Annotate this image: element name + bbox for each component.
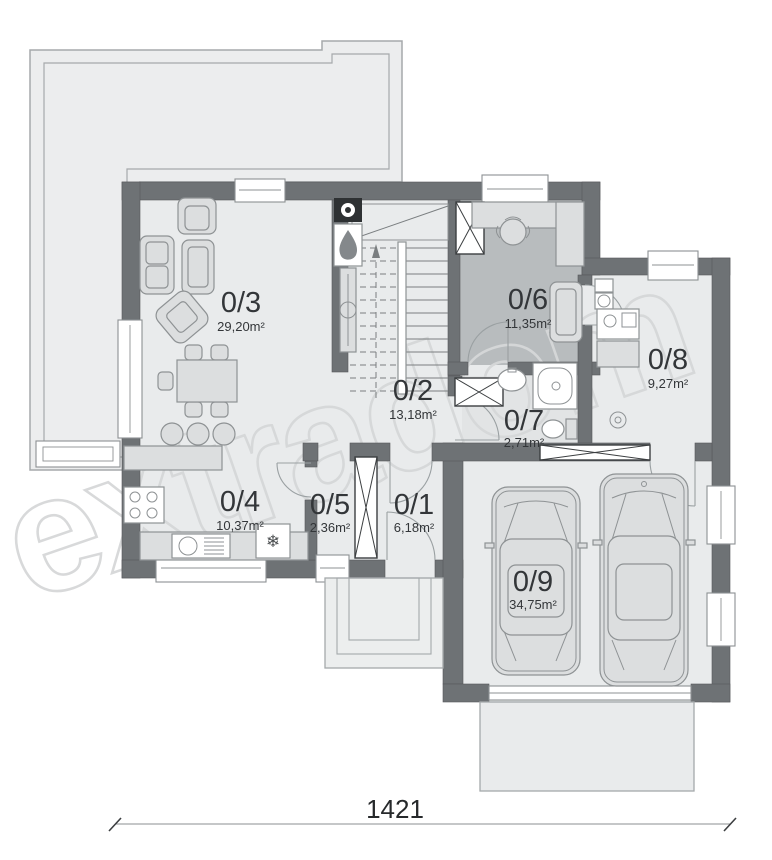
floor-plan-drawing: extradom [0,0,772,860]
room-0-4-area: 10,37m² [216,518,264,533]
room-0-5-area: 2,36m² [310,520,351,535]
stove [124,487,164,523]
room-0-8-area: 9,27m² [648,376,689,391]
room-0-2-number: 0/2 [393,375,433,407]
room-0-6-number: 0/6 [508,284,548,316]
room-0-1-area: 6,18m² [394,520,435,535]
car-mirror [593,540,602,545]
room-0-7-number: 0/7 [504,405,544,437]
driveway-apron [480,702,694,791]
room-0-7-area: 2,71m² [504,435,545,450]
garage-door [489,686,691,700]
utility-table [597,341,639,367]
sofa-room6 [550,282,582,342]
shaft-room5 [355,457,377,558]
armchair [178,198,216,234]
room8-cabinet [540,445,650,460]
window-living-left [118,320,142,438]
bar-counter [124,446,222,470]
room-0-3-number: 0/3 [221,287,261,319]
wall-garage-left [443,443,463,684]
shower [533,363,577,409]
bar-stool [213,423,235,445]
bar-stool [187,423,209,445]
car-2 [593,474,695,686]
room-0-4-number: 0/4 [220,486,260,518]
bar-stool [161,423,183,445]
room-0-9-area: 34,75m² [509,597,557,612]
porch-steps [325,578,443,668]
window-living-top [235,179,285,202]
room-0-8-number: 0/8 [648,344,688,376]
window-room8-top [648,251,698,280]
dining-table [177,360,237,402]
utility-desk [597,309,639,339]
boiler [595,279,613,292]
toilet [542,419,577,439]
car-mirror [578,543,587,548]
car-mirror [485,543,494,548]
kitchen-sink [172,534,230,558]
fridge-snowflake-icon: ❄ [266,532,280,551]
room-0-3-area: 29,20m² [217,319,265,334]
desk-return [556,202,584,266]
washbasin [498,368,526,391]
room-0-5-number: 0/5 [310,489,350,521]
sofa [140,236,174,294]
dimension-label: 1421 [366,794,424,824]
dimension: 1421 [109,794,736,831]
room-0-9-number: 0/9 [513,566,553,598]
car-mirror [686,540,695,545]
hall-wardrobe [455,378,503,406]
window-garage-right-2 [707,593,735,646]
room-0-1-number: 0/1 [394,489,434,521]
floor-plan: extradom [0,0,772,860]
window-garage-right-1 [707,486,735,544]
stair-rail [398,242,406,394]
window-room6-top [482,175,548,203]
armchair-2 [182,240,214,294]
room-0-6-area: 11,35m² [505,316,552,331]
room-0-2-area: 13,18m² [389,407,437,422]
